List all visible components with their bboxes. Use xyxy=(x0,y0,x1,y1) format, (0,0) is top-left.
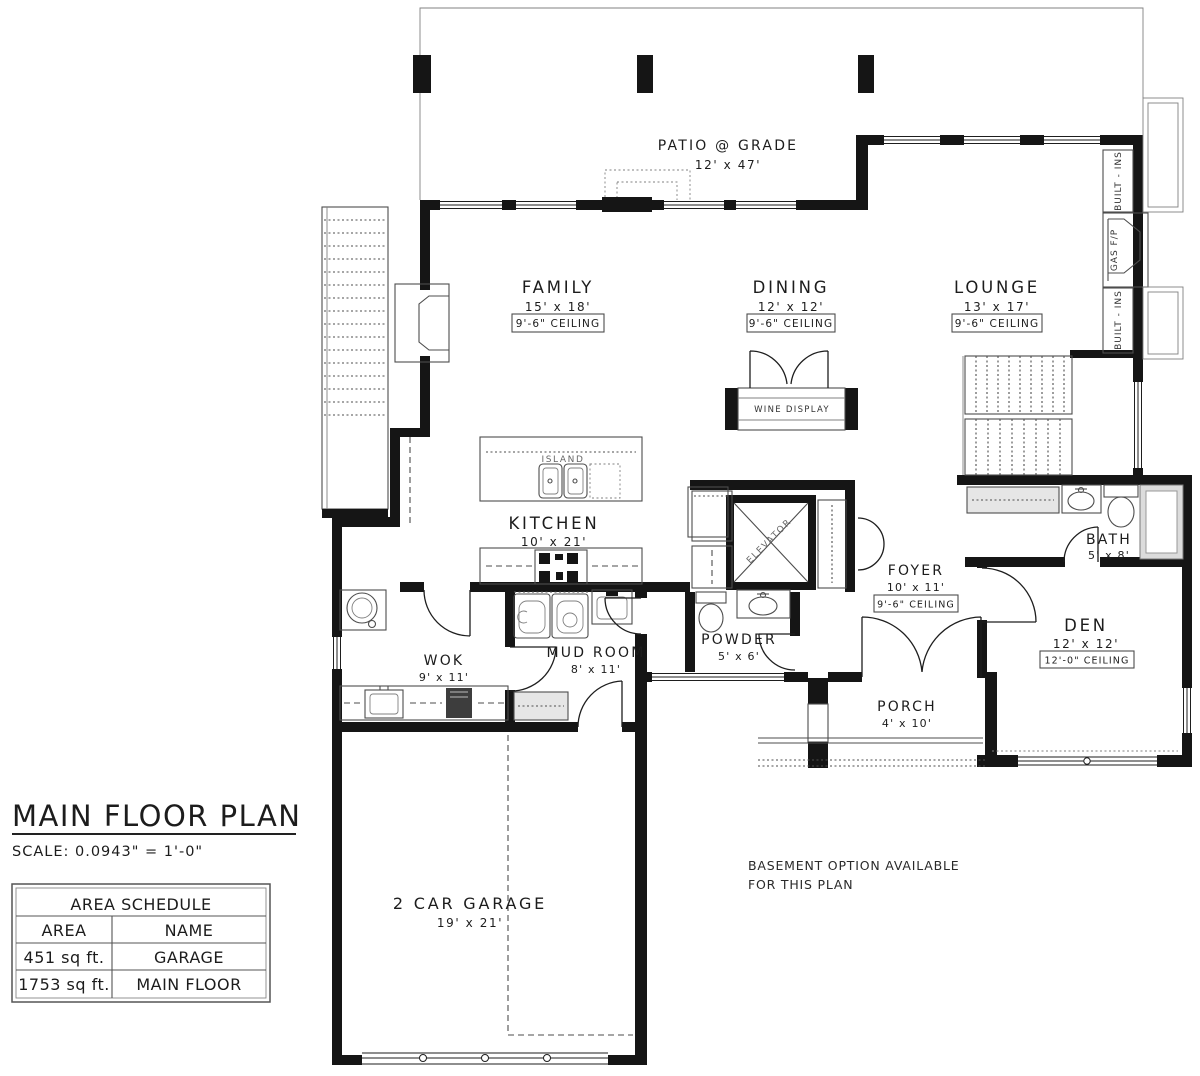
den-ceiling: 12'-0" CEILING xyxy=(1045,656,1130,667)
window xyxy=(1044,135,1100,145)
foyer-ceiling: 9'-6" CEILING xyxy=(877,600,955,611)
window xyxy=(964,135,1020,145)
foyer-closet xyxy=(818,500,846,588)
garage-dims: 19' x 21' xyxy=(437,916,503,930)
island-sink-icon xyxy=(564,464,587,498)
area-schedule-table: AREA SCHEDULE AREA NAME 451 sq ft. GARAG… xyxy=(12,884,270,1002)
bath-toilet-icon xyxy=(1104,485,1138,527)
dining-dims: 12' x 12' xyxy=(758,300,824,314)
entry-double-door xyxy=(862,617,981,677)
basement-stair-outline xyxy=(508,735,633,1035)
wok-counter xyxy=(340,686,508,720)
window xyxy=(884,135,940,145)
patio-column xyxy=(413,55,431,93)
den-label: DEN xyxy=(1064,616,1108,635)
plan-title: MAIN FLOOR PLAN xyxy=(12,799,302,833)
basement-note-line1: BASEMENT OPTION AVAILABLE xyxy=(748,858,959,873)
bath-label: BATH xyxy=(1086,532,1132,548)
washer-icon xyxy=(514,594,550,638)
gas-fireplace-label: GAS F/P xyxy=(1110,229,1120,271)
mainfloor-name-value: MAIN FLOOR xyxy=(136,975,241,994)
patio-label: PATIO @ GRADE xyxy=(658,138,798,154)
exterior-stairs xyxy=(322,207,388,518)
window xyxy=(1018,755,1157,767)
window xyxy=(516,200,576,210)
dining-label: DINING xyxy=(753,278,830,297)
island-sink-icon xyxy=(539,464,562,498)
patio-column xyxy=(637,55,653,93)
wine-display-cabinet xyxy=(738,351,845,430)
bath-closet xyxy=(1140,485,1183,559)
mudroom-dims: 8' x 11' xyxy=(571,663,621,676)
kitchen-counter xyxy=(480,548,642,584)
garage-area-value: 451 sq ft. xyxy=(24,948,105,967)
window xyxy=(1182,688,1192,733)
family-ceiling: 9'-6" CEILING xyxy=(516,318,601,330)
foyer-closet-doors xyxy=(858,518,884,570)
window xyxy=(652,672,784,682)
interior-stairs xyxy=(963,356,1072,475)
family-dims: 15' x 18' xyxy=(525,300,591,314)
fridge-icon xyxy=(688,487,732,541)
stair-closet-shelf xyxy=(967,487,1059,513)
family-fireplace xyxy=(395,284,449,362)
lounge-ceiling: 9'-6" CEILING xyxy=(955,318,1040,330)
island-label: ISLAND xyxy=(541,455,584,465)
area-header: AREA xyxy=(41,921,86,940)
foyer-dims: 10' x 11' xyxy=(887,581,945,594)
wok-door xyxy=(424,590,470,636)
den-dims: 12' x 12' xyxy=(1053,637,1119,651)
patio-outline xyxy=(413,8,1143,202)
mainfloor-area-value: 1753 sq ft. xyxy=(18,975,110,994)
floor-plan-drawing: PATIO @ GRADE 12' x 47' FAMILY 15' x 18'… xyxy=(0,0,1200,1076)
mudroom-side-door xyxy=(605,598,641,634)
window xyxy=(1133,382,1143,468)
patio-dims: 12' x 47' xyxy=(695,158,761,172)
porch-column xyxy=(808,678,828,704)
area-schedule-title: AREA SCHEDULE xyxy=(70,895,211,914)
garage-door-icon xyxy=(362,1052,608,1066)
window xyxy=(736,200,796,210)
kitchen-dims: 10' x 21' xyxy=(521,535,587,549)
patio-column xyxy=(858,55,874,93)
window xyxy=(440,200,502,210)
title-block: MAIN FLOOR PLAN SCALE: 0.0943" = 1'-0" xyxy=(12,799,302,860)
window xyxy=(664,200,724,210)
family-label: FAMILY xyxy=(522,278,594,297)
porch-structure xyxy=(758,678,985,768)
plan-scale: SCALE: 0.0943" = 1'-0" xyxy=(12,844,203,860)
powder-label: POWDER xyxy=(701,632,777,648)
built-ins-lower-label: BUILT - INS xyxy=(1114,290,1124,350)
wine-display-doors xyxy=(750,351,828,388)
name-header: NAME xyxy=(165,921,214,940)
garage-door-swing xyxy=(578,681,622,727)
built-ins-upper-label: BUILT - INS xyxy=(1114,151,1124,211)
wok-sink-icon xyxy=(340,590,386,630)
kitchen-island xyxy=(480,437,642,501)
dryer-icon xyxy=(552,594,588,638)
window xyxy=(332,637,342,669)
bath-sink-icon xyxy=(1062,485,1101,513)
basement-note: BASEMENT OPTION AVAILABLE FOR THIS PLAN xyxy=(748,858,959,892)
powder-toilet-icon xyxy=(696,592,726,632)
lounge-dims: 13' x 17' xyxy=(964,300,1030,314)
powder-sink-icon xyxy=(737,590,790,618)
wok-label: WOK xyxy=(424,653,465,669)
wok-dims: 9' x 11' xyxy=(419,671,469,684)
foyer-label: FOYER xyxy=(888,563,944,579)
mudroom-label: MUD ROOM xyxy=(546,645,645,661)
powder-dims: 5' x 6' xyxy=(718,650,760,663)
porch-label: PORCH xyxy=(877,699,937,715)
garage-label: 2 CAR GARAGE xyxy=(393,894,547,913)
garage-name-value: GARAGE xyxy=(154,948,224,967)
wine-display-label: WINE DISPLAY xyxy=(754,405,830,415)
mud-bench xyxy=(514,692,568,720)
kitchen-label: KITCHEN xyxy=(508,514,599,533)
den-door xyxy=(982,568,1036,622)
dining-ceiling: 9'-6" CEILING xyxy=(749,318,834,330)
porch-dims: 4' x 10' xyxy=(882,717,932,730)
basement-note-line2: FOR THIS PLAN xyxy=(748,877,853,892)
bath-dims: 5' x 8' xyxy=(1088,549,1130,562)
floor-plan-page: PATIO @ GRADE 12' x 47' FAMILY 15' x 18'… xyxy=(0,0,1200,1076)
lounge-label: LOUNGE xyxy=(954,278,1040,297)
title-underline xyxy=(12,833,296,835)
